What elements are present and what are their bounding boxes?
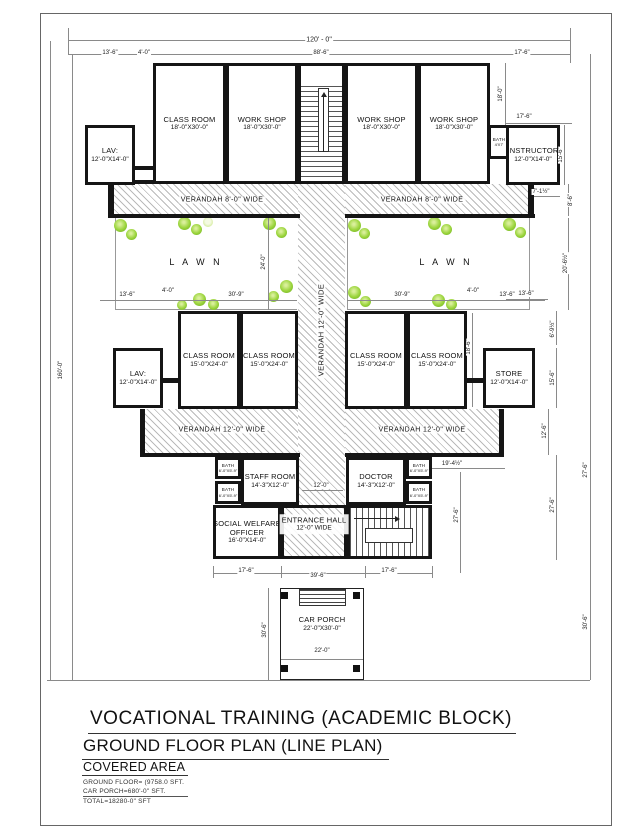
dim-porch-30-6: 30'-6" [262, 621, 268, 638]
porch-column [353, 665, 360, 672]
dim-lawnl-13-6: 13'-6" [118, 292, 135, 298]
dim-line [570, 28, 571, 63]
dim-line [590, 54, 591, 680]
wall [465, 378, 483, 383]
tree-icon [441, 224, 452, 235]
dim-line [432, 468, 505, 469]
dim-line [556, 455, 557, 560]
dim-line [281, 659, 363, 660]
dim-wing-27-6: 27'-6" [454, 506, 460, 523]
tree-icon [515, 227, 526, 238]
dim-far-27-6: 27'-6" [583, 461, 589, 478]
dim-line [548, 409, 549, 455]
dim-line [506, 123, 572, 124]
dim-line [100, 300, 297, 301]
room-lav-mid: LAV: 12'-0"X14'-0" [113, 348, 163, 408]
tree-icon [126, 229, 137, 240]
tree-icon [203, 217, 213, 227]
room-workshop-1: WORK SHOP 18'-0"X30'-0" [226, 63, 298, 184]
floor-plan-sheet: L A W N L A W N LAV: 12'-0"X14'-0" CLASS… [0, 0, 640, 837]
dim-tick [432, 566, 433, 578]
dim-line [72, 54, 73, 680]
porch-column [281, 592, 288, 599]
dim-line [460, 472, 461, 573]
wall [140, 409, 145, 457]
room-classroom-top: CLASS ROOM 18'-0"X30'-0" [153, 63, 226, 184]
dim-line [472, 313, 473, 407]
wall [108, 214, 300, 218]
dim-20-6: 20'-6½" [563, 252, 569, 274]
dim-19-4: 19'-4½" [441, 461, 463, 467]
drawing-title: VOCATIONAL TRAINING (ACADEMIC BLOCK) [88, 708, 516, 734]
tree-icon [348, 286, 361, 299]
dim-instr-17-6: 17'-6" [515, 114, 532, 120]
dim-line [564, 125, 565, 185]
dim-porch-22-0: 22'-0" [313, 648, 330, 654]
tree-icon [280, 280, 293, 293]
staircase-entrance [347, 505, 432, 559]
dim-bottom-17-6-left: 17'-6" [237, 568, 254, 574]
room-bath-1: BATH 6'-0"X5'-9" [215, 457, 241, 479]
room-classroom-mid-4: CLASS ROOM 15'-0"X24'-0" [407, 311, 467, 409]
verandah-12-central-label: VERANDAH 12'-0" WIDE [317, 282, 326, 379]
verandah-12-right-label: VERANDAH 12'-0" WIDE [377, 427, 468, 434]
verandah-12-left-label: VERANDAH 12'-0" WIDE [177, 427, 268, 434]
dim-top-13-6: 13'-6" [101, 50, 118, 56]
dim-12-6: 12'-6" [542, 422, 548, 439]
room-instructor: INSTRUCTOR 12'-0"X14'-0" [506, 125, 560, 185]
lawn-left-label: L A W N [169, 257, 222, 267]
dim-hall-12-0: 12'-0" [312, 483, 329, 489]
staircase-main [298, 63, 345, 184]
dim-tick [213, 566, 214, 578]
room-classroom-mid-2: CLASS ROOM 15'-0"X24'-0" [240, 311, 298, 409]
dim-line [50, 41, 51, 680]
dim-right-13-6: 13'-6" [517, 291, 534, 297]
verandah-8-right-label: VERANDAH 8'-0" WIDE [379, 197, 466, 204]
dim-tick [281, 566, 282, 578]
wall [163, 378, 178, 383]
tree-icon [276, 227, 287, 238]
tree-icon [359, 228, 370, 239]
covered-area-heading: COVERED AREA [82, 760, 188, 776]
porch-steps [299, 589, 346, 606]
dim-top-17-6: 17'-6" [513, 50, 530, 56]
tree-icon [503, 218, 516, 231]
room-classroom-mid-1: CLASS ROOM 15'-0"X24'-0" [178, 311, 240, 409]
dim-lawnl-30-9: 30'-9" [227, 292, 244, 298]
room-bath-2: BATH 6'-0"X5'-9" [215, 481, 241, 504]
dim-top-88-6: 88'-6" [312, 50, 329, 56]
stair-landing [365, 528, 413, 543]
covered-area-line-2: CAR PORCH=680'-0" SFT. [83, 788, 188, 797]
room-bath-4: BATH 6'-0"X5'-9" [406, 481, 432, 504]
room-lav-top: LAV: 12'-0"X14'-0" [85, 125, 135, 185]
dim-lawnr-4-0: 4'-0" [466, 288, 480, 294]
dim-top-4-0: 4'-0" [137, 50, 151, 56]
dim-lawnr-13-6: 13'-6" [498, 292, 515, 298]
dim-overall-width: 120' - 0" [305, 37, 333, 44]
stair-direction-arrow [323, 96, 324, 152]
wall [135, 166, 153, 170]
room-workshop-3: WORK SHOP 18'-0"X30'-0" [418, 63, 490, 184]
room-bath-3: BATH 6'-0"X5'-9" [406, 457, 432, 479]
wall [345, 214, 535, 218]
wall [135, 180, 153, 184]
dim-6-9: 6'-9½" [550, 320, 556, 339]
dim-7-1: 7'-1½" [532, 189, 551, 195]
car-porch-label: CAR PORCH 22'-0"X30'-0" [281, 615, 363, 633]
dim-lawnl-4-0: 4'-0" [161, 288, 175, 294]
dim-line [556, 348, 557, 408]
tree-icon [428, 217, 441, 230]
dim-right-18-0: 18'-0" [498, 85, 504, 102]
dim-store-15-6: 15'-6" [550, 369, 556, 386]
dim-8-6: 8'-6" [568, 193, 574, 207]
dim-line [347, 300, 545, 301]
dim-far-30-6: 30'-6" [583, 613, 589, 630]
dim-lawnr-30-9: 30'-9" [393, 292, 410, 298]
room-doctor: DOCTOR 14'-3"X12'-0" [346, 457, 406, 505]
tree-icon [177, 300, 187, 310]
porch-column [353, 592, 360, 599]
room-social-welfare: SOCIAL WELFARE OFFICER 16'-0"X14'-0" [213, 505, 281, 559]
covered-area-line-1: GROUND FLOOR= (9758.0 SFT. [83, 779, 184, 786]
dim-left-height: 160'-0" [58, 360, 64, 381]
tree-icon [263, 217, 276, 230]
dim-line [268, 218, 269, 310]
wall [499, 409, 504, 457]
dim-lawn-24: 24'-0" [261, 253, 267, 270]
room-store: STORE 12'-0"X14'-0" [483, 348, 535, 408]
entrance-hall-label: ENTRANCE HALL 12'-0" WIDE [280, 514, 349, 534]
dim-line [556, 311, 557, 345]
room-staff: STAFF ROOM 14'-3"X12'-0" [241, 457, 299, 505]
verandah-8-left-label: VERANDAH 8'-0" WIDE [179, 197, 266, 204]
dim-instr-15-6: 15'-6" [558, 146, 564, 163]
tree-icon [114, 219, 127, 232]
dim-bottom-39-6: 39'-6" [309, 573, 326, 579]
lawn-right-label: L A W N [419, 257, 472, 267]
dim-line [302, 490, 343, 491]
dim-wing-27-6-b: 27'-6" [550, 496, 556, 513]
stair-direction-arrow [354, 518, 396, 519]
room-workshop-2: WORK SHOP 18'-0"X30'-0" [345, 63, 418, 184]
dim-line [268, 588, 269, 680]
porch-column [281, 665, 288, 672]
tree-icon [360, 296, 371, 307]
tree-icon [191, 224, 202, 235]
dim-mid-18-6: 18'-6" [466, 338, 472, 355]
covered-area-line-3: TOTAL=18280-0" SFT [83, 798, 151, 805]
wall [108, 184, 114, 218]
dim-bottom-17-6-right: 17'-6" [380, 568, 397, 574]
dim-tick [365, 566, 366, 578]
dim-line [505, 63, 506, 125]
room-classroom-mid-3: CLASS ROOM 15'-0"X24'-0" [345, 311, 407, 409]
dim-line [68, 28, 69, 54]
tree-icon [178, 217, 191, 230]
ground-line [47, 680, 590, 681]
drawing-subtitle: GROUND FLOOR PLAN (LINE PLAN) [82, 736, 389, 760]
